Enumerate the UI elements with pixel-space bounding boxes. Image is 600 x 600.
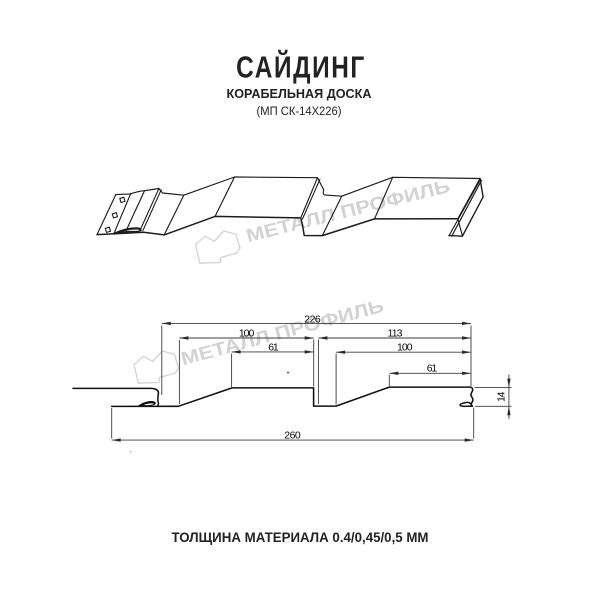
svg-text:113: 113 (388, 328, 403, 340)
svg-text:КОРАБЕЛЬНАЯ ДОСКА: КОРАБЕЛЬНАЯ ДОСКА (227, 87, 372, 101)
svg-text:226: 226 (304, 313, 321, 325)
svg-text:САЙДИНГ: САЙДИНГ (236, 50, 366, 84)
svg-text:14: 14 (496, 391, 508, 402)
svg-text:100: 100 (239, 328, 255, 340)
svg-text:100: 100 (397, 342, 413, 354)
svg-text:260: 260 (284, 430, 301, 442)
svg-text:61: 61 (268, 341, 279, 353)
svg-text:(МП СК-14Х226): (МП СК-14Х226) (257, 106, 342, 118)
svg-text:61: 61 (427, 363, 438, 375)
svg-text:ТОЛЩИНА МАТЕРИАЛА 0.4/0,45/0,5: ТОЛЩИНА МАТЕРИАЛА 0.4/0,45/0,5 ММ (172, 530, 429, 545)
